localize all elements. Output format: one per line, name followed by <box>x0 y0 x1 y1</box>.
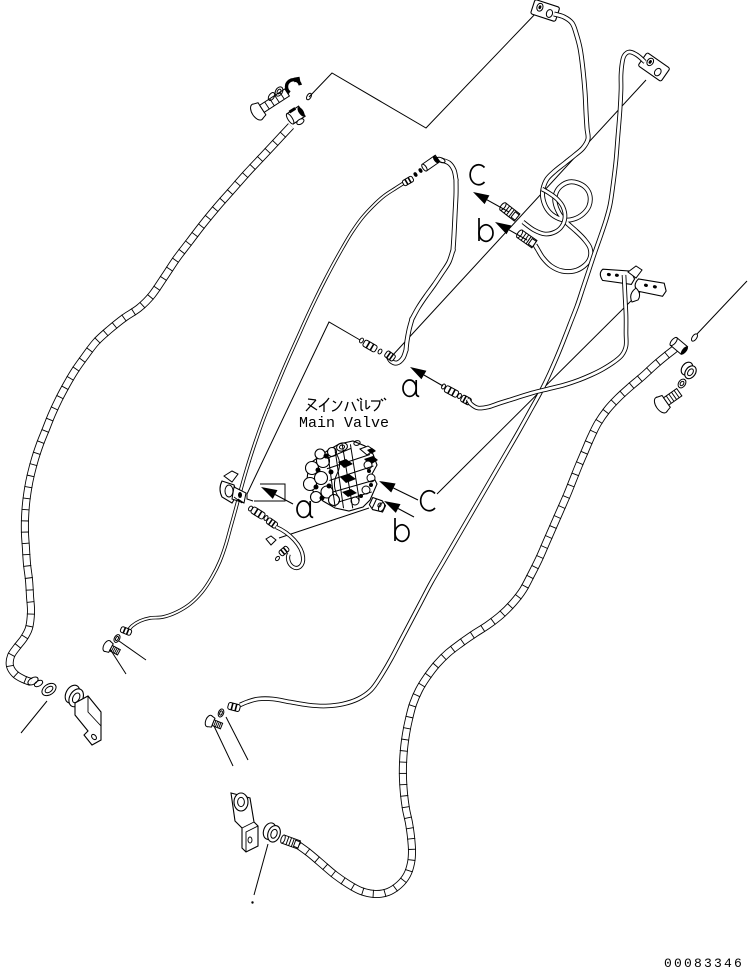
svg-text:00083346: 00083346 <box>664 956 744 969</box>
svg-text:Main Valve: Main Valve <box>299 415 389 432</box>
